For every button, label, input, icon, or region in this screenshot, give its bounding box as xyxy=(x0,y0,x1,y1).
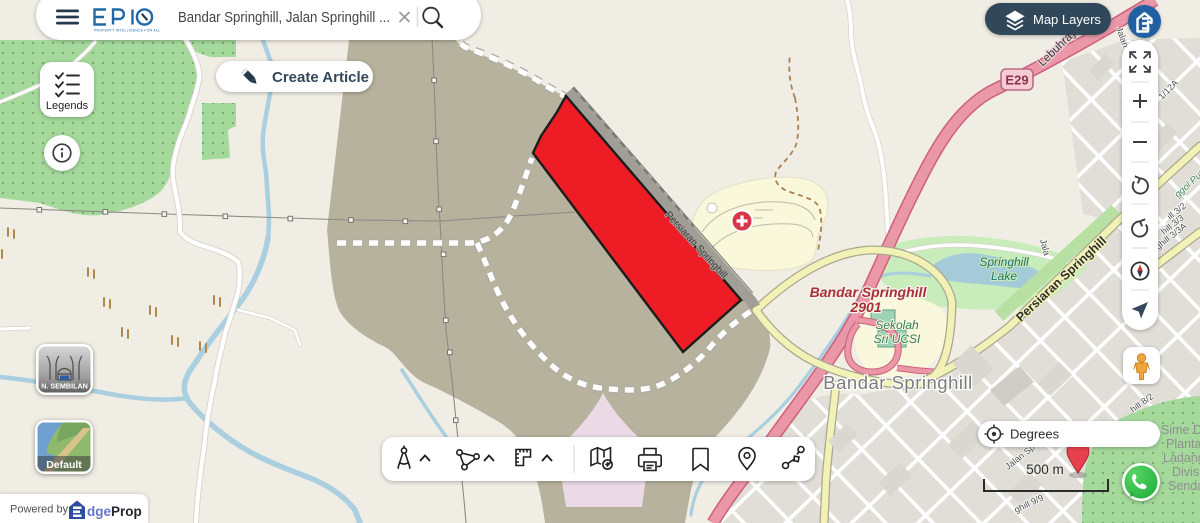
svg-text:Sime Da: Sime Da xyxy=(1161,423,1200,437)
svg-text:500 m: 500 m xyxy=(1026,462,1064,477)
svg-text:Lake: Lake xyxy=(991,269,1017,283)
svg-text:Powered by: Powered by xyxy=(10,504,69,516)
svg-text:N. SEMBILAN: N. SEMBILAN xyxy=(41,382,88,391)
svg-text:Sekolah: Sekolah xyxy=(875,318,919,332)
svg-text:Springhill: Springhill xyxy=(979,255,1029,269)
svg-text:Divisi: Divisi xyxy=(1172,465,1200,479)
svg-text:PROPERTY INTELLIGENCE FOR ALL: PROPERTY INTELLIGENCE FOR ALL xyxy=(94,29,160,33)
svg-text:2901: 2901 xyxy=(849,299,881,315)
svg-text:Create Article: Create Article xyxy=(272,69,369,86)
svg-text:Degrees: Degrees xyxy=(1010,427,1060,442)
svg-text:Map Layers: Map Layers xyxy=(1033,12,1101,27)
svg-text:Senda: Senda xyxy=(1168,479,1200,493)
svg-text:Plantat: Plantat xyxy=(1166,437,1200,451)
svg-text:Bandar Springhill: Bandar Springhill xyxy=(823,372,972,393)
svg-text:Ladang: Ladang xyxy=(1163,451,1200,465)
svg-text:Bandar Springhill: Bandar Springhill xyxy=(810,284,928,300)
svg-text:Bandar Springhill, Jalan Sprin: Bandar Springhill, Jalan Springhill ... xyxy=(178,9,390,26)
svg-text:E29: E29 xyxy=(1005,73,1028,88)
svg-text:Sri UCSI: Sri UCSI xyxy=(874,332,921,346)
svg-text:Default: Default xyxy=(46,459,82,471)
svg-text:dgeProp: dgeProp xyxy=(87,504,142,519)
svg-text:Legends: Legends xyxy=(46,100,89,112)
